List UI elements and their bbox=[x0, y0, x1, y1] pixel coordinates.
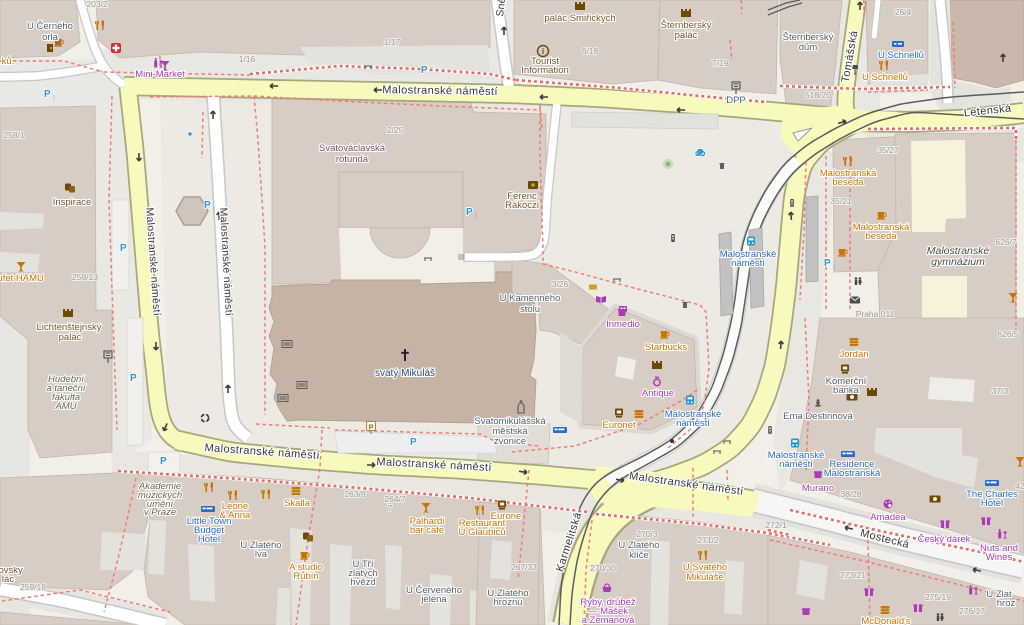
svg-text:lác: lác bbox=[2, 574, 14, 585]
svg-text:Hotel: Hotel bbox=[198, 534, 220, 545]
svg-text:626/5: 626/5 bbox=[997, 329, 1019, 339]
svg-text:gymnázium: gymnázium bbox=[931, 256, 985, 268]
svg-text:a Zemanová: a Zemanová bbox=[582, 615, 636, 625]
svg-text:Rubín: Rubín bbox=[293, 571, 318, 582]
svg-text:35/21: 35/21 bbox=[830, 196, 852, 206]
svg-text:275/19: 275/19 bbox=[925, 592, 951, 602]
svg-text:1/17: 1/17 bbox=[384, 37, 401, 47]
svg-text:263/8: 263/8 bbox=[344, 489, 366, 499]
svg-text:Inspirace: Inspirace bbox=[53, 197, 92, 208]
svg-text:palác Smiřických: palác Smiřických bbox=[544, 13, 615, 24]
svg-text:P: P bbox=[369, 425, 374, 432]
svg-text:McDonald's: McDonald's bbox=[861, 616, 911, 625]
svg-text:U Schnellů: U Schnellů bbox=[878, 50, 924, 61]
svg-text:272/1: 272/1 bbox=[765, 520, 787, 530]
svg-text:7: 7 bbox=[388, 503, 393, 513]
svg-text:P: P bbox=[120, 243, 127, 254]
svg-text:rotunda: rotunda bbox=[336, 154, 369, 165]
svg-text:DPP: DPP bbox=[726, 95, 746, 106]
svg-text:Antique: Antique bbox=[642, 388, 674, 399]
svg-text:203/2: 203/2 bbox=[86, 0, 108, 9]
svg-text:náměstí: náměstí bbox=[779, 459, 813, 470]
svg-text:lva: lva bbox=[255, 549, 268, 560]
svg-text:⋮: ⋮ bbox=[211, 207, 217, 213]
svg-text:hroznu: hroznu bbox=[493, 597, 522, 608]
svg-text:U Černého: U Černého bbox=[27, 21, 73, 32]
svg-text:37/3: 37/3 bbox=[992, 386, 1009, 396]
svg-text:AMU: AMU bbox=[54, 401, 76, 412]
svg-text:26/4: 26/4 bbox=[895, 7, 912, 17]
svg-text:P: P bbox=[410, 437, 417, 448]
svg-text:271/2: 271/2 bbox=[697, 535, 719, 545]
svg-text:stolu: stolu bbox=[520, 304, 540, 315]
svg-text:626/7: 626/7 bbox=[995, 237, 1017, 247]
svg-text:klíče: klíče bbox=[629, 550, 649, 561]
svg-text:Amadea: Amadea bbox=[870, 512, 906, 523]
svg-text:Hotel: Hotel bbox=[981, 498, 1003, 509]
svg-text:3/26: 3/26 bbox=[552, 279, 569, 289]
svg-text:270/30: 270/30 bbox=[590, 563, 616, 573]
svg-text:Praha 011: Praha 011 bbox=[856, 309, 895, 319]
svg-text:Svatováclavská: Svatováclavská bbox=[319, 143, 386, 154]
svg-text:267/33: 267/33 bbox=[511, 562, 537, 572]
svg-text:palác: palác bbox=[675, 30, 698, 41]
svg-text:Rákóczi: Rákóczi bbox=[505, 200, 539, 211]
svg-text:1/16: 1/16 bbox=[239, 54, 256, 64]
svg-text:Ema Destinnová: Ema Destinnová bbox=[783, 411, 853, 422]
svg-text:259/18: 259/18 bbox=[20, 582, 46, 592]
svg-text:beseda: beseda bbox=[832, 177, 864, 188]
svg-text:Information: Information bbox=[521, 65, 569, 76]
svg-text:hroz: hroz bbox=[997, 598, 1016, 609]
svg-text:banka: banka bbox=[833, 385, 860, 396]
svg-text:P: P bbox=[421, 65, 428, 76]
svg-text:273/21: 273/21 bbox=[840, 570, 866, 580]
svg-text:palác: palác bbox=[59, 332, 82, 343]
svg-text:Murano: Murano bbox=[802, 483, 834, 494]
svg-text:jelena: jelena bbox=[420, 594, 447, 605]
svg-text:bufet HAMU: bufet HAMU bbox=[0, 273, 44, 284]
svg-text:ků.: ků. bbox=[2, 56, 15, 67]
svg-text:náměstí: náměstí bbox=[731, 258, 765, 269]
svg-text:beseda: beseda bbox=[865, 231, 897, 242]
svg-text:Mini-Market: Mini-Market bbox=[135, 69, 185, 80]
svg-text:Wines: Wines bbox=[986, 552, 1013, 563]
svg-text:⋮: ⋮ bbox=[831, 265, 837, 271]
svg-text:svatý Mikuláš: svatý Mikuláš bbox=[375, 368, 435, 379]
svg-text:U Kamenného: U Kamenného bbox=[500, 293, 561, 304]
svg-text:orla: orla bbox=[42, 32, 59, 43]
svg-text:Jordan: Jordan bbox=[839, 349, 868, 360]
svg-text:i: i bbox=[542, 47, 544, 56]
svg-text:náměstí: náměstí bbox=[676, 418, 710, 429]
svg-text:Český dárek: Český dárek bbox=[918, 534, 971, 545]
svg-text:35/27: 35/27 bbox=[877, 145, 899, 155]
svg-text:6/18: 6/18 bbox=[582, 46, 599, 56]
svg-text:258/1: 258/1 bbox=[3, 130, 25, 140]
svg-text:Inmedio: Inmedio bbox=[606, 319, 640, 330]
svg-text:38/28: 38/28 bbox=[840, 489, 862, 499]
svg-text:P: P bbox=[824, 258, 831, 269]
svg-text:dům: dům bbox=[799, 42, 818, 53]
svg-text:P: P bbox=[204, 200, 211, 211]
svg-text:Starbucks: Starbucks bbox=[645, 342, 687, 353]
svg-text:U Glaubiců: U Glaubiců bbox=[459, 527, 506, 538]
svg-text:P: P bbox=[44, 89, 51, 100]
svg-text:P: P bbox=[130, 373, 137, 384]
svg-text:P: P bbox=[160, 456, 167, 467]
svg-text:⋮: ⋮ bbox=[51, 96, 57, 102]
svg-text:518/20: 518/20 bbox=[805, 90, 831, 100]
svg-text:bar cafe: bar cafe bbox=[410, 525, 444, 536]
svg-text:Malostranská: Malostranská bbox=[824, 468, 881, 479]
svg-text:v Praze: v Praze bbox=[144, 507, 176, 518]
svg-text:Euronet: Euronet bbox=[602, 420, 636, 431]
svg-text:2/25: 2/25 bbox=[387, 125, 404, 135]
svg-text:258/13: 258/13 bbox=[72, 272, 98, 282]
svg-text:270/3: 270/3 bbox=[636, 529, 658, 539]
svg-text:Malostranské náměstí: Malostranské náměstí bbox=[382, 84, 498, 98]
svg-text:7/19: 7/19 bbox=[712, 58, 729, 68]
svg-text:276/17: 276/17 bbox=[959, 606, 985, 616]
svg-text:⋮: ⋮ bbox=[473, 214, 479, 220]
svg-text:Skalla: Skalla bbox=[284, 498, 311, 509]
svg-text:U Schnellů: U Schnellů bbox=[862, 72, 908, 83]
svg-text:zvonice: zvonice bbox=[494, 436, 526, 447]
svg-text:Mikuláše: Mikuláše bbox=[686, 572, 724, 583]
svg-text:P: P bbox=[466, 207, 473, 218]
svg-text:Eurone: Eurone bbox=[491, 511, 522, 522]
svg-text:hvězd: hvězd bbox=[350, 577, 375, 588]
